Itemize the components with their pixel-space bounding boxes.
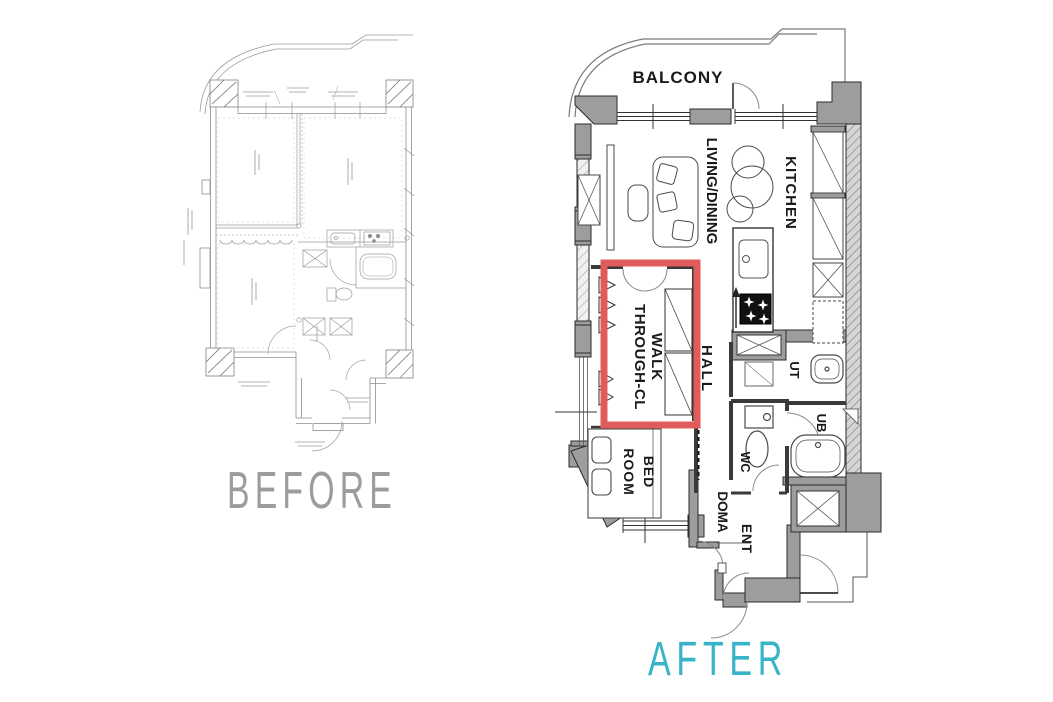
pillow: [592, 469, 611, 495]
label-ent: ENT: [739, 524, 754, 554]
label-wc: WC: [738, 452, 752, 473]
before-floorplan: BEFORE: [170, 30, 460, 530]
balcony-door: [733, 83, 759, 109]
before-after-floorplan-image: BEFORE: [0, 0, 1053, 702]
label-living-dining: LIVING/DINING: [703, 138, 720, 245]
label-bedroom-line2: ROOM: [621, 448, 637, 496]
before-outer-walls: [200, 102, 414, 451]
before-annotation-marks: [184, 86, 370, 446]
before-interior: [216, 114, 409, 410]
label-bedroom-line1: BED: [641, 456, 657, 489]
after-floorplan: BALCONY LIVING/DINING KITCHEN WALK THROU…: [555, 25, 975, 685]
label-ut: UT: [787, 361, 802, 378]
label-ub: UB: [814, 414, 829, 433]
label-walk-through-line2: THROUGH-CL: [631, 304, 648, 410]
label-doma: DOMA: [715, 491, 730, 532]
label-hall: HALL: [698, 345, 715, 393]
label-kitchen: KITCHEN: [782, 156, 799, 230]
before-caption: BEFORE: [227, 462, 397, 520]
pillow: [592, 437, 611, 463]
elevator-shaft: [797, 491, 839, 526]
label-walk-through-line1: WALK: [648, 333, 665, 381]
before-corner-blocks: [206, 80, 413, 378]
label-balcony: BALCONY: [632, 68, 723, 87]
after-caption: AFTER: [648, 633, 788, 685]
